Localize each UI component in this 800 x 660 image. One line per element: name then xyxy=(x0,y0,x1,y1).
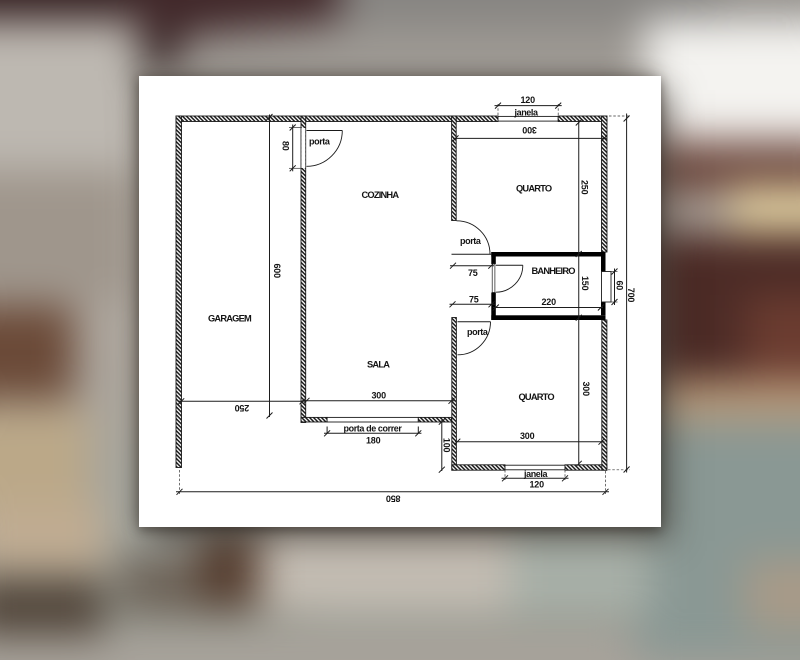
svg-text:120: 120 xyxy=(530,480,545,490)
svg-text:80: 80 xyxy=(280,141,290,151)
svg-text:300: 300 xyxy=(522,125,537,135)
svg-text:janela: janela xyxy=(523,469,549,479)
svg-text:300: 300 xyxy=(520,431,535,441)
svg-text:150: 150 xyxy=(580,276,590,291)
svg-text:60: 60 xyxy=(615,281,625,291)
svg-text:GARAGEM: GARAGEM xyxy=(208,314,252,324)
svg-text:porta: porta xyxy=(460,236,482,246)
svg-text:300: 300 xyxy=(372,391,387,401)
svg-text:220: 220 xyxy=(542,297,557,307)
svg-text:600: 600 xyxy=(272,264,282,279)
svg-text:100: 100 xyxy=(442,438,452,453)
svg-text:75: 75 xyxy=(469,294,479,304)
svg-text:QUARTO: QUARTO xyxy=(519,392,555,402)
svg-text:porta: porta xyxy=(467,327,489,337)
svg-text:700: 700 xyxy=(626,288,636,303)
svg-text:QUARTO: QUARTO xyxy=(516,184,552,194)
svg-text:janela: janela xyxy=(514,108,540,118)
svg-text:SALA: SALA xyxy=(367,360,390,370)
svg-text:250: 250 xyxy=(235,403,250,413)
svg-text:porta: porta xyxy=(309,137,331,147)
svg-text:75: 75 xyxy=(468,268,478,278)
svg-text:850: 850 xyxy=(386,494,401,504)
svg-text:COZINHA: COZINHA xyxy=(362,190,400,200)
svg-text:porta de correr: porta de correr xyxy=(344,424,403,434)
svg-text:BANHEIRO: BANHEIRO xyxy=(532,266,576,276)
svg-text:120: 120 xyxy=(521,95,536,105)
svg-text:300: 300 xyxy=(581,382,591,397)
svg-text:250: 250 xyxy=(580,180,590,195)
svg-text:180: 180 xyxy=(366,436,381,446)
